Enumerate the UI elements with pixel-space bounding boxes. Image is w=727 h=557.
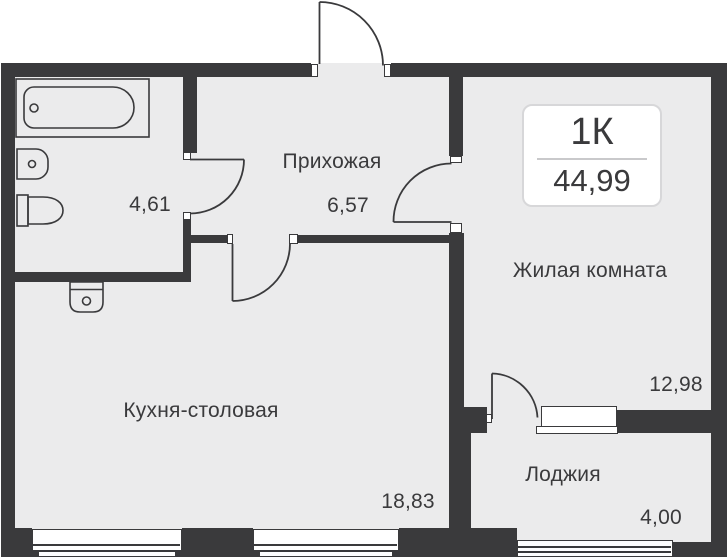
kitchen-sink bbox=[70, 282, 103, 312]
room-label-hallway: Прихожая bbox=[283, 150, 382, 174]
bathtub bbox=[16, 79, 149, 137]
area-label-hallway: 6,57 bbox=[327, 194, 369, 218]
room-label-kitchen: Кухня-столовая bbox=[123, 399, 278, 423]
kitchen-door-swing bbox=[233, 244, 291, 302]
living-door-swing bbox=[393, 164, 451, 223]
unit-total-area: 44,99 bbox=[553, 163, 631, 199]
area-label-kitchen: 18,83 bbox=[381, 490, 435, 514]
floor-plan: Прихожая 6,57 4,61 Жилая комната 12,98 К… bbox=[0, 0, 727, 557]
area-label-living: 12,98 bbox=[649, 373, 703, 397]
room-label-living: Жилая комната bbox=[513, 259, 667, 283]
unit-info-card: 1К 44,99 bbox=[522, 104, 662, 207]
unit-card-divider bbox=[537, 158, 647, 160]
toilet bbox=[17, 195, 63, 226]
room-label-loggia: Лоджия bbox=[525, 463, 601, 487]
unit-type-label: 1К bbox=[570, 112, 613, 154]
area-label-loggia: 4,00 bbox=[640, 506, 682, 530]
washbasin bbox=[17, 149, 48, 179]
entrance-door-swing bbox=[320, 2, 384, 66]
balcony-door-swing bbox=[492, 374, 538, 420]
bathroom-door-swing bbox=[190, 160, 244, 214]
area-label-bathroom: 4,61 bbox=[129, 193, 171, 217]
